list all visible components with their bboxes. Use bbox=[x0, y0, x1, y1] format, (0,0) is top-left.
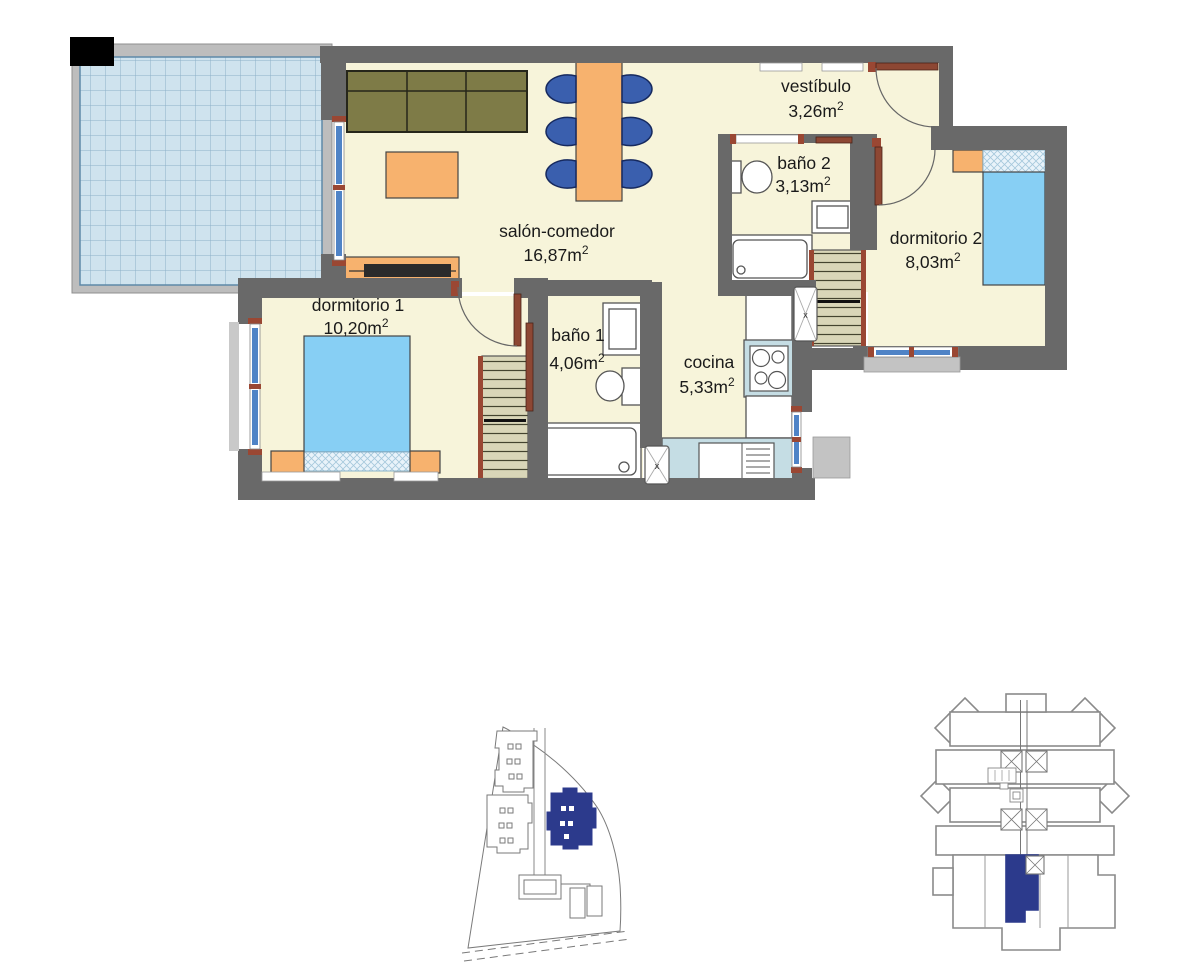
bed-pillows bbox=[304, 452, 410, 471]
wall-niche bbox=[262, 472, 340, 481]
window-salon-terrace bbox=[332, 116, 346, 266]
wardrobe-rail bbox=[816, 300, 860, 303]
terrace-tiles bbox=[80, 57, 322, 285]
bed-pillow bbox=[983, 150, 1045, 172]
coffee-table bbox=[386, 152, 458, 198]
window-cocina bbox=[791, 406, 850, 478]
window-bano2-high bbox=[730, 134, 804, 144]
terrace-corner-block bbox=[70, 37, 114, 66]
site-building-outline bbox=[487, 795, 532, 853]
wardrobe bbox=[812, 250, 864, 346]
room-label-bano2: baño 2 bbox=[777, 153, 831, 173]
wardrobe-frame bbox=[861, 250, 866, 346]
wardrobe-rail bbox=[484, 419, 526, 422]
building-step bbox=[933, 868, 953, 895]
room-label-dormitorio2: dormitorio 2 bbox=[890, 228, 982, 248]
room-area-dormitorio1: 10,20m2 bbox=[323, 316, 388, 338]
toilet-bowl bbox=[596, 371, 624, 401]
bathtub-drain bbox=[619, 462, 629, 472]
nightstand bbox=[271, 451, 304, 473]
tv bbox=[364, 264, 451, 277]
room-area-salon: 16,87m2 bbox=[523, 243, 588, 265]
building-floor-bands bbox=[936, 694, 1114, 855]
sofa bbox=[347, 71, 527, 132]
appliance-marker: x bbox=[655, 461, 660, 471]
single-bed bbox=[983, 172, 1045, 285]
floor-plan-drawing: x x vestíbulo 3,26m2 baño 2 3,13m2 dormi… bbox=[0, 0, 1200, 966]
room-label-salon: salón-comedor bbox=[499, 221, 615, 241]
bathtub-drain bbox=[737, 266, 745, 274]
wall-niche bbox=[394, 472, 438, 481]
floor-plan-page: x x vestíbulo 3,26m2 baño 2 3,13m2 dormi… bbox=[0, 0, 1200, 966]
room-label-dormitorio1: dormitorio 1 bbox=[312, 295, 404, 315]
room-area-cocina: 5,33m2 bbox=[679, 375, 735, 397]
sink-basin bbox=[817, 206, 848, 228]
site-plan bbox=[462, 727, 630, 961]
toilet-tank bbox=[622, 368, 642, 405]
site-building-outline bbox=[495, 731, 537, 792]
wall-niche bbox=[822, 63, 863, 71]
appliance-marker: x bbox=[803, 310, 808, 320]
appliance-slot: x bbox=[645, 446, 669, 484]
room-area-dormitorio2: 8,03m2 bbox=[905, 250, 961, 272]
site-highlighted-building bbox=[547, 788, 596, 849]
kitchen-counter bbox=[746, 294, 792, 341]
sink-basin bbox=[609, 309, 636, 349]
dining-table bbox=[576, 61, 622, 201]
window-dormitorio2 bbox=[864, 347, 960, 372]
room-area-bano2: 3,13m2 bbox=[775, 174, 831, 196]
double-bed bbox=[304, 336, 410, 452]
room-label-bano1: baño 1 bbox=[551, 325, 605, 345]
room-label-vestibulo: vestíbulo bbox=[781, 76, 851, 96]
building-key-plan bbox=[921, 694, 1129, 950]
window-dormitorio1 bbox=[229, 318, 262, 455]
door-bano2 bbox=[816, 137, 852, 143]
wall-niche bbox=[760, 63, 802, 71]
room-area-vestibulo: 3,26m2 bbox=[788, 99, 844, 121]
nightstand bbox=[410, 451, 440, 473]
room-area-bano1: 4,06m2 bbox=[549, 351, 605, 373]
door-bano1 bbox=[526, 323, 533, 411]
wardrobe-frame bbox=[478, 356, 483, 488]
toilet-bowl bbox=[742, 161, 772, 193]
nightstand bbox=[953, 150, 983, 172]
terrace bbox=[70, 37, 332, 293]
appliance-slot: x bbox=[794, 287, 817, 341]
kitchen-counter bbox=[746, 396, 792, 438]
room-label-cocina: cocina bbox=[684, 352, 735, 372]
